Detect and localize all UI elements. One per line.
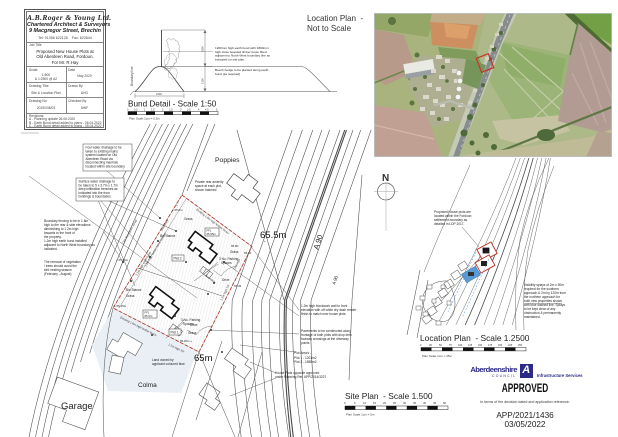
svg-text:Plan Scale 1cm = 5m: Plan Scale 1cm = 5m — [346, 413, 375, 417]
svg-text:Plan Scale 1cm = 0.5m: Plan Scale 1cm = 0.5m — [129, 117, 160, 121]
svg-text:3.5: 3.5 — [187, 109, 191, 112]
svg-text:65.80: 65.80 — [231, 244, 239, 248]
svg-text:Plan Scale 1cm = 25m: Plan Scale 1cm = 25m — [422, 354, 453, 358]
svg-text:A 90: A 90 — [331, 275, 339, 286]
svg-text:Grass: Grass — [188, 331, 197, 335]
svg-text:under Planning Ref. APP/2014/3: under Planning Ref. APP/2014/3237 — [275, 375, 326, 379]
svg-text:45: 45 — [433, 401, 437, 405]
svg-text:35: 35 — [413, 401, 417, 405]
svg-text:125: 125 — [468, 344, 473, 347]
svg-text:0: 0 — [420, 344, 422, 347]
svg-text:0: 0 — [344, 401, 346, 405]
svg-text:5: 5 — [354, 401, 356, 405]
svg-text:A 90: A 90 — [311, 234, 324, 251]
svg-text:Boundary line: Boundary line — [130, 66, 134, 86]
svg-text:1.5: 1.5 — [151, 109, 155, 112]
svg-text:+ 65.15m: + 65.15m — [114, 304, 127, 308]
svg-text:0.5: 0.5 — [134, 109, 138, 112]
svg-text:Spaces: Spaces — [183, 322, 194, 326]
svg-text:Bund Detail - Scale 1:50: Bund Detail - Scale 1:50 — [128, 100, 217, 109]
svg-text:175: 175 — [488, 344, 493, 347]
svg-text:150: 150 — [478, 344, 483, 347]
svg-text:25: 25 — [393, 401, 397, 405]
svg-text:10: 10 — [363, 401, 367, 405]
svg-text:1800: 1800 — [201, 46, 205, 52]
svg-text:buildings & boundaries: buildings & boundaries — [79, 195, 112, 199]
svg-text:Site Plan - Scale 1.500: Site Plan - Scale 1.500 — [345, 391, 433, 401]
svg-text:65.9m: 65.9m — [145, 314, 153, 318]
svg-text:15: 15 — [373, 401, 377, 405]
svg-text:Colma: Colma — [138, 382, 157, 389]
svg-text:Bin Stance: Bin Stance — [126, 288, 142, 292]
svg-text:1200: 1200 — [201, 78, 205, 84]
svg-text:50: 50 — [443, 401, 447, 405]
svg-text:65.60: 65.60 — [244, 251, 252, 255]
svg-text:2400: 2400 — [156, 92, 162, 96]
svg-text:Poppies: Poppies — [215, 157, 240, 164]
svg-text:4.5: 4.5 — [205, 109, 209, 112]
svg-text:Garage: Garage — [61, 401, 93, 412]
svg-text:+ 65.35m: + 65.35m — [116, 258, 129, 262]
svg-text:65.20m +: 65.20m + — [180, 339, 192, 343]
svg-text:Grass: Grass — [126, 294, 135, 298]
svg-text:Grass: Grass — [184, 217, 193, 221]
svg-text:Drive: Drive — [222, 278, 230, 282]
svg-text:2.5: 2.5 — [169, 109, 173, 112]
svg-text:200: 200 — [498, 344, 503, 347]
svg-text:25: 25 — [429, 344, 432, 347]
svg-text:Location Plan - Scale 1.2500: Location Plan - Scale 1.2500 — [420, 333, 530, 343]
svg-text:0: 0 — [127, 109, 129, 112]
svg-text:100: 100 — [458, 344, 463, 347]
svg-text:250: 250 — [518, 344, 523, 347]
svg-text:65.45: 65.45 — [234, 284, 242, 288]
svg-text:75: 75 — [449, 344, 452, 347]
svg-text:shown hatched: shown hatched — [195, 188, 217, 192]
svg-text:3: 3 — [180, 109, 182, 112]
svg-text:Plot Area's -: Plot Area's - — [294, 351, 311, 355]
svg-text:+ 65.6m: + 65.6m — [172, 208, 183, 212]
svg-text:20: 20 — [383, 401, 387, 405]
svg-text:N: N — [382, 173, 389, 184]
svg-text:65.95m: 65.95m — [207, 232, 217, 236]
svg-text:points: points — [301, 341, 310, 345]
svg-text:+: + — [176, 203, 178, 207]
svg-text:30: 30 — [403, 401, 407, 405]
svg-text:(February - August): (February - August) — [44, 272, 71, 276]
svg-text:1: 1 — [144, 109, 146, 112]
svg-text:2: 2 — [162, 109, 164, 112]
svg-text:65.5m: 65.5m — [260, 230, 286, 241]
svg-text:225: 225 — [508, 344, 513, 347]
svg-text:maintained.: maintained. — [524, 315, 541, 319]
svg-text:detailed in LDP 2017.: detailed in LDP 2017. — [434, 222, 465, 226]
svg-text:located within site boundary: located within site boundary — [86, 165, 126, 169]
svg-text:4: 4 — [198, 109, 200, 112]
svg-text:5: 5 — [216, 109, 218, 112]
svg-text:40: 40 — [423, 401, 427, 405]
svg-text:Plot 2: Plot 2 — [174, 257, 182, 261]
svg-text:50: 50 — [439, 344, 442, 347]
svg-text:bund (as required): bund (as required) — [215, 72, 240, 76]
svg-text:indicated.: indicated. — [44, 247, 58, 251]
svg-text:indicated on site plan.: indicated on site plan. — [215, 57, 245, 61]
svg-text:65m: 65m — [194, 353, 213, 364]
svg-text:applicant coloured blue: applicant coloured blue — [152, 362, 185, 366]
svg-text:finish to match new house plot: finish to match new house plots. — [301, 312, 346, 316]
svg-text:Plot 2 - 1558m2: Plot 2 - 1558m2 — [294, 360, 317, 364]
svg-text:Plot 1: Plot 1 — [171, 331, 179, 335]
svg-text:Spaces: Spaces — [221, 261, 232, 265]
svg-text:Grass: Grass — [230, 250, 239, 254]
